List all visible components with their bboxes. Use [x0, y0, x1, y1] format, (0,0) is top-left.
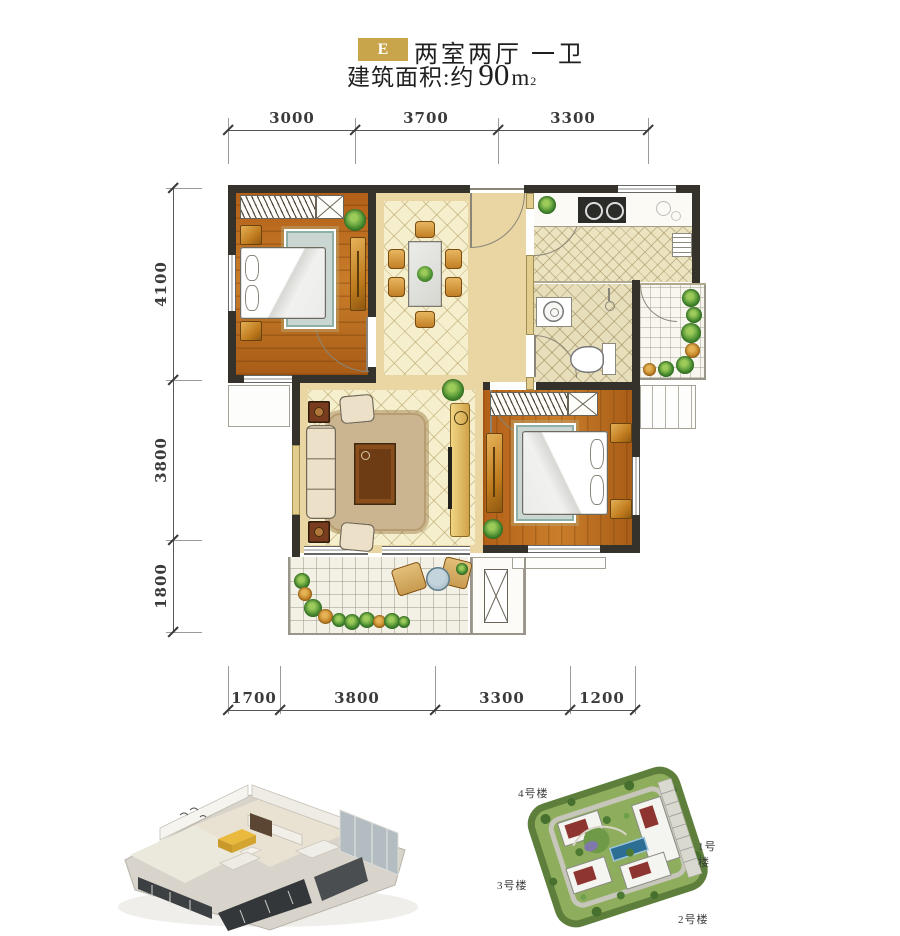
- plant-icon: [456, 563, 468, 575]
- plant-icon: [676, 356, 694, 374]
- kitchen-bath-divider: [534, 281, 632, 283]
- wall: [483, 545, 528, 553]
- toilet-tank: [602, 343, 616, 375]
- plant-icon: [658, 361, 674, 377]
- wall: [368, 193, 376, 317]
- master-door-leaf: [366, 317, 368, 371]
- dim-label-left-2: 3800: [153, 424, 169, 496]
- shower-head-icon: [605, 301, 615, 311]
- table-centerpiece: [417, 266, 433, 282]
- burner-icon: [585, 202, 603, 220]
- fridge-icon: [672, 233, 692, 257]
- plant-icon: [682, 289, 700, 307]
- wardrobe-icon: [490, 392, 568, 416]
- dim-label-top-3: 3300: [537, 110, 609, 126]
- flower-balcony-railing: [704, 285, 706, 380]
- dim-label-bottom-3: 3300: [466, 690, 538, 706]
- wardrobe-icon: [240, 195, 316, 219]
- wall: [368, 367, 376, 375]
- plant-icon: [318, 609, 333, 624]
- area-unit: m: [511, 65, 530, 91]
- plant-icon: [686, 307, 702, 323]
- area-exponent: 2: [530, 74, 537, 89]
- dim-label-top-1: 3000: [256, 110, 328, 126]
- pillow: [245, 255, 259, 281]
- bath-door-leaf: [534, 335, 536, 377]
- dim-ext: [498, 118, 499, 164]
- dining-chair-icon: [388, 249, 405, 269]
- dim-label-bottom-2: 3800: [321, 690, 393, 706]
- plant-icon: [643, 363, 656, 376]
- second-bedroom-window: [632, 457, 640, 515]
- entry-threshold: [470, 188, 524, 190]
- nightstand-icon: [610, 499, 632, 519]
- cabinet-x-icon: [316, 195, 344, 219]
- wall: [292, 383, 300, 445]
- area-label: 建筑面积:约: [347, 58, 474, 92]
- balcony-railing: [288, 557, 290, 635]
- balcony-table-icon: [426, 567, 450, 591]
- south-parapet: [512, 557, 606, 569]
- infill-wall: [526, 377, 534, 390]
- wall: [292, 515, 300, 557]
- dim-label-top-2: 3700: [390, 110, 462, 126]
- balcony-railing: [288, 633, 526, 635]
- dim-label-left-3: 1800: [153, 550, 169, 622]
- wall: [292, 375, 376, 383]
- master-bedroom-window: [228, 255, 236, 311]
- cabinet-x-icon: [568, 392, 598, 416]
- plant-icon: [398, 616, 410, 628]
- plant-icon: [538, 196, 556, 214]
- wall: [600, 545, 640, 553]
- dining-chair-icon: [445, 249, 462, 269]
- kitchen-window: [618, 185, 676, 193]
- 3d-render-thumbnail: [100, 755, 430, 935]
- dim-line-top: [228, 130, 648, 131]
- area-line: 建筑面积:约90m2: [347, 57, 537, 93]
- infill-wall: [526, 193, 534, 209]
- tv-icon: [448, 447, 452, 509]
- wall: [228, 185, 470, 193]
- plant-icon: [681, 323, 701, 343]
- side-table-detail: [314, 407, 324, 417]
- infill-wall: [292, 445, 300, 515]
- site-label-building-2: 2号楼: [678, 911, 709, 927]
- pillow: [590, 439, 604, 469]
- wall: [524, 185, 534, 193]
- plant-icon: [442, 379, 464, 401]
- site-map: 4号楼 1号楼 3号楼 2号楼: [518, 760, 718, 936]
- side-table-detail: [314, 527, 324, 537]
- speaker-icon: [454, 411, 468, 425]
- site-label-building-4: 4号楼: [518, 785, 549, 801]
- wall: [632, 280, 640, 457]
- living-balcony-window: [382, 546, 470, 555]
- burner-icon: [606, 202, 624, 220]
- dining-chair-icon: [415, 221, 435, 238]
- flower-balcony-railing: [640, 378, 706, 380]
- entry-door-leaf: [470, 193, 472, 247]
- wall: [692, 185, 700, 285]
- basin-drain: [550, 308, 559, 317]
- dim-label-left-1: 4100: [153, 248, 169, 320]
- floor-plan: [228, 185, 712, 640]
- wall: [228, 185, 236, 255]
- shower-icon: [608, 288, 610, 301]
- sink-icon: [656, 201, 671, 216]
- coffee-table-detail: [361, 451, 370, 460]
- dim-ext: [648, 118, 649, 164]
- dining-chair-icon: [415, 311, 435, 328]
- dining-chair-icon: [388, 277, 405, 297]
- dim-ext: [228, 118, 229, 164]
- infill-wall: [526, 255, 534, 335]
- dim-label-bottom-4: 1200: [566, 690, 638, 706]
- plant-icon: [344, 614, 360, 630]
- plant-icon: [344, 209, 366, 231]
- dim-label-bottom-1: 1700: [218, 690, 290, 706]
- wall: [228, 375, 244, 383]
- wall: [228, 311, 236, 383]
- plant-icon: [483, 519, 503, 539]
- dim-ext: [355, 118, 356, 164]
- area-value: 90: [478, 57, 509, 93]
- sink-icon: [671, 211, 681, 221]
- wall: [534, 185, 618, 193]
- bay-window-ledge: [228, 385, 290, 427]
- dining-chair-icon: [445, 277, 462, 297]
- nightstand-icon: [240, 225, 262, 245]
- sofa-icon: [306, 425, 336, 519]
- wall: [536, 382, 640, 390]
- site-label-building-1: 1号楼: [698, 838, 718, 870]
- site-label-building-3: 3号楼: [497, 877, 528, 893]
- dresser-handle: [493, 447, 495, 497]
- pillow: [245, 285, 259, 311]
- second-bedroom-south-window: [528, 545, 600, 553]
- pillow: [590, 475, 604, 505]
- floorplan-page: E 两室两厅 一卫 建筑面积:约90m2 3000 3700 3300 4100…: [0, 0, 900, 936]
- nightstand-icon: [240, 321, 262, 341]
- railing: [524, 557, 526, 635]
- shaft-x-icon: [484, 569, 508, 623]
- armchair-icon: [339, 394, 375, 425]
- armchair-icon: [339, 522, 375, 553]
- ac-platform: [640, 385, 696, 429]
- dresser-handle: [357, 251, 359, 297]
- dim-line-left: [173, 188, 174, 632]
- toilet-icon: [570, 346, 604, 373]
- wall: [483, 382, 490, 390]
- master-bay-window: [244, 375, 292, 383]
- nightstand-icon: [610, 423, 632, 443]
